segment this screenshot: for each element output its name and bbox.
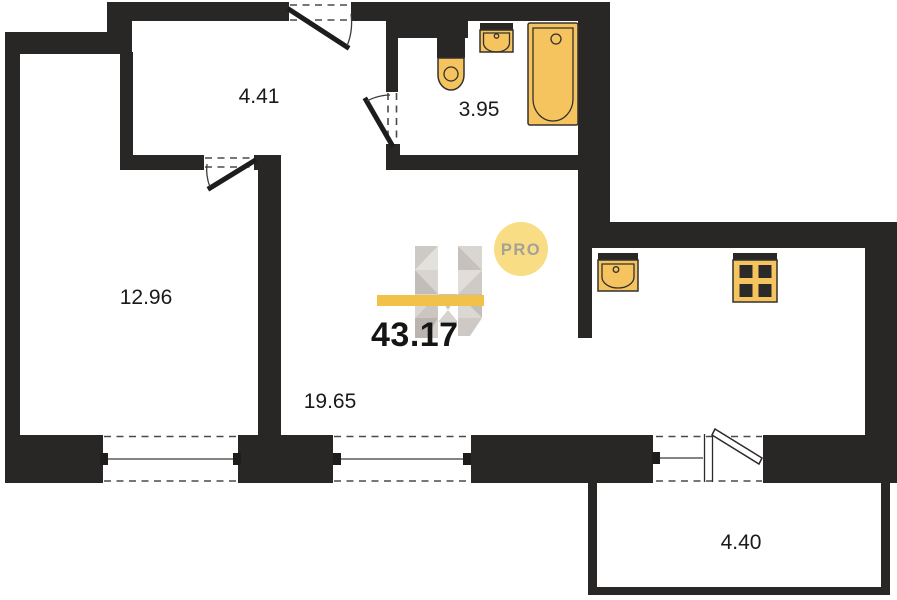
pro-badge: PRO xyxy=(494,222,548,276)
room-label-balcony: 4.40 xyxy=(721,531,762,554)
wall-segment xyxy=(386,21,398,92)
door-swing-arc xyxy=(347,14,352,46)
wall-segment xyxy=(578,2,610,248)
wall-segment xyxy=(588,483,597,595)
wall-segment xyxy=(5,32,132,54)
room-label-hallway: 4.41 xyxy=(239,85,280,108)
balcony-door xyxy=(712,429,762,464)
wall-segment xyxy=(5,435,103,483)
door-leaf xyxy=(210,161,254,188)
stove-burner xyxy=(740,265,753,278)
door-leaf xyxy=(290,10,347,47)
stove-mount xyxy=(733,253,777,260)
logo-accent-bar xyxy=(377,295,484,306)
window-3-with-balcony-door xyxy=(652,429,762,482)
toilet-bowl xyxy=(438,58,464,90)
wall-sink-icon xyxy=(480,23,513,52)
window-post xyxy=(233,453,241,465)
toilet-tank xyxy=(437,38,465,58)
total-area-label: 43.17 xyxy=(371,316,459,354)
room-label-bathroom: 3.95 xyxy=(459,98,500,121)
window-2 xyxy=(333,437,471,482)
wall-segment xyxy=(108,2,289,21)
wall-segment xyxy=(588,587,890,595)
wall-segment xyxy=(254,155,281,170)
wall-segment xyxy=(578,248,592,338)
wall-segment xyxy=(578,222,897,248)
window-post xyxy=(652,452,660,464)
window-post xyxy=(463,453,471,465)
stove-burner xyxy=(759,284,772,297)
bathtub-icon xyxy=(528,23,578,125)
window-post xyxy=(100,453,108,465)
sink-mount xyxy=(598,253,638,260)
wall-segment xyxy=(386,155,610,170)
wall-segment xyxy=(120,52,133,170)
wall-segment xyxy=(471,435,653,483)
wall-segment xyxy=(258,170,281,435)
stove-burner xyxy=(759,265,772,278)
stove-icon xyxy=(733,253,777,302)
wall-segment xyxy=(120,155,204,170)
wall-segment xyxy=(351,2,610,21)
window-1 xyxy=(100,437,241,482)
floor-plan: PRO 4.41 3.95 12.96 19.65 4.40 43.17 xyxy=(0,0,897,600)
room-label-living: 19.65 xyxy=(304,390,357,413)
room-label-bedroom: 12.96 xyxy=(120,286,173,309)
wall-segment xyxy=(865,248,897,483)
window-post xyxy=(333,453,341,465)
wall-segment xyxy=(881,483,890,595)
wall-segment xyxy=(238,435,333,483)
kitchen-sink-icon xyxy=(598,253,638,291)
pro-badge-label: PRO xyxy=(501,241,541,259)
floor-plan-drawing: PRO 4.41 3.95 12.96 19.65 4.40 43.17 xyxy=(0,0,897,600)
bedroom-door xyxy=(205,158,254,188)
entrance-door xyxy=(290,5,352,47)
bathroom-door xyxy=(366,93,397,145)
toilet-icon xyxy=(437,38,465,90)
wall-segment xyxy=(5,32,20,483)
stove-burner xyxy=(740,284,753,297)
duct-shaft xyxy=(398,21,468,38)
door-swing-arc xyxy=(367,95,390,101)
sink-mount xyxy=(480,23,513,30)
